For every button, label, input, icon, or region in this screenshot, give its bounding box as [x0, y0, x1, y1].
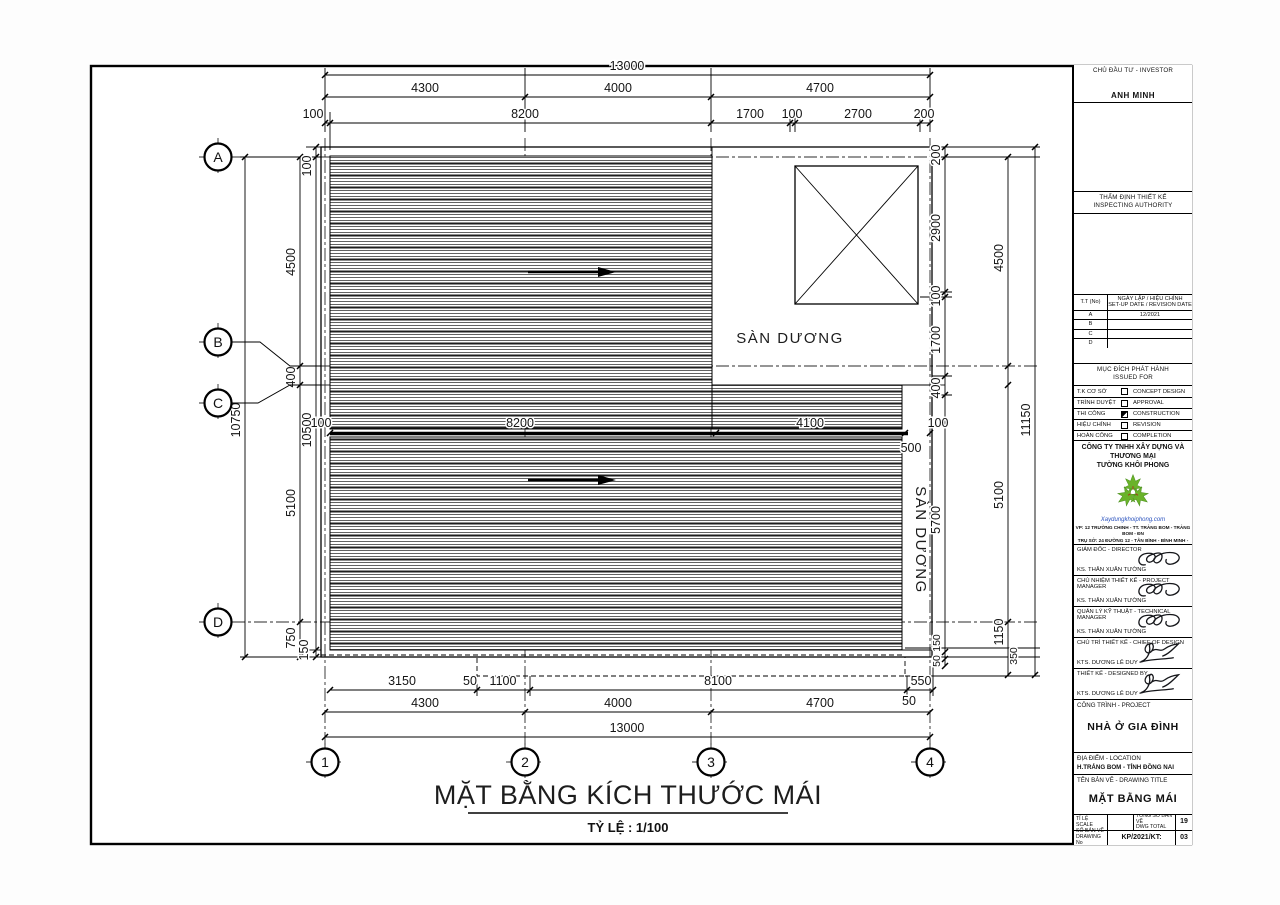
checkbox-concept-design	[1121, 388, 1128, 395]
checkbox-completion	[1121, 433, 1128, 440]
issued-row-vn: T.K CƠ SỞ	[1077, 389, 1121, 395]
dim-label: 4500	[992, 244, 1006, 272]
dim-label: 3150	[388, 674, 416, 688]
rev-row-date	[1108, 329, 1192, 338]
inspecting-label-vn: THẨM ĐỊNH THIẾT KẾ	[1074, 192, 1192, 202]
drawing-no-value: KP/2021/KT:	[1108, 830, 1176, 845]
dim-label: 1700	[736, 107, 764, 121]
title-block: CHỦ ĐẦU TƯ - INVESTOR ANH MINH THẨM ĐỊNH…	[1072, 65, 1192, 845]
roof-hatch-lower	[330, 437, 902, 650]
dim-label: 100	[928, 416, 949, 430]
grid-bubble-c: C	[213, 395, 223, 411]
grid-bubble-4: 4	[926, 754, 934, 770]
drawing-title-section: TÊN BẢN VẼ - DRAWING TITLE MẶT BẰNG MÁI	[1074, 775, 1192, 815]
dim-label: 4500	[284, 248, 298, 276]
checkbox-approval	[1121, 400, 1128, 407]
issued-for-header: MỤC ĐÍCH PHÁT HÀNH ISSUED FOR	[1074, 364, 1192, 386]
location-section: ĐỊA ĐIỂM - LOCATION H.TRẢNG BOM - TỈNH Đ…	[1074, 753, 1192, 775]
dim-label: 4100	[796, 416, 824, 430]
investor-label: CHỦ ĐẦU TƯ - INVESTOR	[1074, 65, 1192, 75]
issued-row-vn: THI CÔNG	[1077, 411, 1121, 417]
signer-project-manager: CHỦ NHIỆM THIẾT KẾ - PROJECT MANAGER KS.…	[1074, 576, 1192, 607]
location-label: ĐỊA ĐIỂM - LOCATION	[1074, 753, 1192, 762]
dim-label: 10500	[300, 413, 314, 448]
issued-row-vn: TRÌNH DUYỆT	[1077, 400, 1121, 406]
issued-row-en: APPROVAL	[1133, 400, 1164, 406]
dim-label: 5100	[284, 489, 298, 517]
dim-top-overall: 13000	[610, 59, 645, 73]
grid-bubble-a: A	[213, 149, 223, 165]
checkbox-revision	[1121, 422, 1128, 429]
revision-table: T.T (No) NGÀY LẬP / HIỆU CHỈNH SET-UP DA…	[1074, 295, 1192, 364]
footer-grid: TỈ LỆSCALE TỔNG SỐ BẢN VẼDWG TOTAL 19 SỐ…	[1074, 815, 1192, 845]
dim-label: 5100	[992, 481, 1006, 509]
signer-director: GIÁM ĐỐC - DIRECTOR KS. THÂN XUÂN TƯỜNG	[1074, 545, 1192, 576]
project-name: NHÀ Ở GIA ĐÌNH	[1074, 721, 1192, 733]
dim-label: 350	[1008, 647, 1020, 665]
grid-bubble-2: 2	[521, 754, 529, 770]
dim-label: 4000	[604, 696, 632, 710]
issued-row-vn: HIỆU CHỈNH	[1077, 422, 1121, 428]
signature-icon	[1133, 671, 1189, 696]
signer-designed-by: THIẾT KẾ - DESIGNED BY KTS. DƯƠNG LÊ DUY	[1074, 669, 1192, 700]
rev-row-no: B	[1074, 319, 1108, 328]
company-address-line1: VP: 12 TRƯỜNG CHINH - TT. TRẢNG BOM - TR…	[1076, 525, 1191, 536]
dim-label: 2900	[929, 214, 943, 242]
dim-label: 100	[782, 107, 803, 121]
rev-row-no: D	[1074, 338, 1108, 347]
rev-col-no: T.T (No)	[1074, 295, 1108, 310]
dim-label: 200	[914, 107, 935, 121]
grid-bubble-d: D	[213, 614, 223, 630]
dim-label: 200	[929, 145, 943, 166]
company-section: CÔNG TY TNHH XÂY DỰNG VÀ THƯƠNG MẠI TƯỜN…	[1074, 441, 1192, 545]
inspecting-label-en: INSPECTING AUTHORITY	[1074, 202, 1192, 210]
dim-label: 150	[297, 640, 311, 661]
investor-section: CHỦ ĐẦU TƯ - INVESTOR ANH MINH	[1074, 65, 1192, 103]
dim-label: 4000	[604, 81, 632, 95]
dim-label: 100	[300, 156, 314, 177]
dim-label: 100	[303, 107, 324, 121]
rev-row-date	[1108, 338, 1192, 347]
dim-label: 4300	[411, 696, 439, 710]
roof-hatch-upper	[330, 156, 712, 429]
dim-label: 750	[284, 628, 298, 649]
signer-chief-of-design: CHỦ TRÌ THIẾT KẾ - CHIEF OF DESIGN KTS. …	[1074, 638, 1192, 669]
issued-label-vn: MỤC ĐÍCH PHÁT HÀNH	[1074, 364, 1192, 374]
investor-stamp-area	[1074, 103, 1192, 192]
inspecting-section: THẨM ĐỊNH THIẾT KẾ INSPECTING AUTHORITY	[1074, 192, 1192, 214]
scale-value	[1108, 815, 1134, 830]
terrace-label-right: SÀN DƯƠNG	[912, 486, 929, 594]
signer-name: KS. THÂN XUÂN TƯỜNG	[1077, 629, 1146, 635]
signer-name: KTS. DƯƠNG LÊ DUY	[1077, 660, 1138, 666]
dim-label: 50	[931, 655, 943, 667]
plan-scale: TỶ LỆ : 1/100	[588, 820, 669, 835]
plan-title: MẶT BẰNG KÍCH THƯỚC MÁI	[434, 779, 822, 810]
issued-row-en: REVISION	[1133, 422, 1161, 428]
terrace-label-top: SÀN DƯƠNG	[736, 330, 844, 347]
dim-label: 400	[284, 367, 298, 388]
dim-label: 50	[463, 674, 477, 688]
signer-name: KS. THÂN XUÂN TƯỜNG	[1077, 567, 1146, 573]
dim-label: 1700	[929, 326, 943, 354]
dim-label: 5700	[929, 506, 943, 534]
signer-technical-manager: QUẢN LÝ KỸ THUẬT - TECHNICAL MANAGER KS.…	[1074, 607, 1192, 638]
dim-label: 400	[929, 378, 943, 399]
rev-row-date	[1108, 319, 1192, 328]
investor-name: ANH MINH	[1074, 91, 1192, 102]
dim-label: 500	[901, 441, 922, 455]
dim-label: 4700	[806, 81, 834, 95]
dim-label: 550	[911, 674, 932, 688]
company-address-line2: TRỤ SỞ: 24 ĐƯỜNG 12 - TÂN BÌNH - BÌNH MI…	[1078, 538, 1189, 545]
grid-bubble-b: B	[213, 334, 222, 350]
company-logo	[1074, 472, 1192, 517]
drawing-no-label: SỐ BẢN VẼDRAWING No	[1074, 830, 1108, 845]
dim-label: 8200	[511, 107, 539, 121]
project-label: CÔNG TRÌNH - PROJECT	[1074, 700, 1192, 709]
dim-label: 100	[929, 286, 943, 307]
signer-name: KTS. DƯƠNG LÊ DUY	[1077, 691, 1138, 697]
roof-plan-sheet: SÀN DƯƠNG SÀN DƯƠNG	[0, 0, 1280, 905]
dim-label: 1100	[490, 674, 517, 688]
issued-row-en: COMPLETION	[1133, 433, 1171, 439]
issued-row-en: CONCEPT DESIGN	[1133, 389, 1185, 395]
dim-label: 4300	[411, 81, 439, 95]
grid-bubble-1: 1	[321, 754, 329, 770]
company-name-line2: TƯỜNG KHÔI PHONG	[1097, 462, 1169, 469]
dwg-total-label: TỔNG SỐ BẢN VẼDWG TOTAL	[1134, 815, 1176, 830]
drawing-title-value: MẶT BẰNG MÁI	[1074, 793, 1192, 805]
inspecting-stamp-area	[1074, 214, 1192, 295]
dim-label: 8200	[506, 416, 534, 430]
dim-label: 150	[931, 634, 943, 652]
dim-label: 1150	[992, 619, 1006, 646]
issued-row-en: CONSTRUCTION	[1133, 411, 1180, 417]
signature-icon	[1133, 640, 1189, 665]
dim-label: 4700	[806, 696, 834, 710]
grid-bubble-3: 3	[707, 754, 715, 770]
dwg-total-value: 19	[1176, 815, 1192, 830]
issued-for-rows: T.K CƠ SỞCONCEPT DESIGN TRÌNH DUYỆTAPPRO…	[1074, 386, 1192, 441]
dim-bottom-overall: 13000	[610, 721, 645, 735]
maple-leaves-logo-icon	[1113, 472, 1153, 512]
drawing-title-label: TÊN BẢN VẼ - DRAWING TITLE	[1074, 775, 1192, 784]
rev-row-no: C	[1074, 329, 1108, 338]
rev-row-date: 12/2021	[1108, 310, 1192, 319]
company-name-line1: CÔNG TY TNHH XÂY DỰNG VÀ THƯƠNG MẠI	[1082, 444, 1185, 460]
drawing-no-seq: 03	[1176, 830, 1192, 845]
checkbox-construction	[1121, 411, 1128, 418]
dim-label: 8100	[704, 674, 732, 688]
rev-col-date: NGÀY LẬP / HIỆU CHỈNH SET-UP DATE / REVI…	[1108, 295, 1192, 310]
location-value: H.TRẢNG BOM - TỈNH ĐỒNG NAI	[1074, 762, 1192, 771]
dim-right-overall: 11150	[1019, 404, 1033, 437]
project-section: CÔNG TRÌNH - PROJECT NHÀ Ở GIA ĐÌNH	[1074, 700, 1192, 753]
dim-label: 50	[902, 694, 916, 708]
issued-label-en: ISSUED FOR	[1074, 374, 1192, 382]
signer-name: KS. THÂN XUÂN TƯỜNG	[1077, 598, 1146, 604]
issued-row-vn: HOÀN CÔNG	[1077, 433, 1121, 439]
rev-row-no: A	[1074, 310, 1108, 319]
dim-label: 2700	[844, 107, 872, 121]
